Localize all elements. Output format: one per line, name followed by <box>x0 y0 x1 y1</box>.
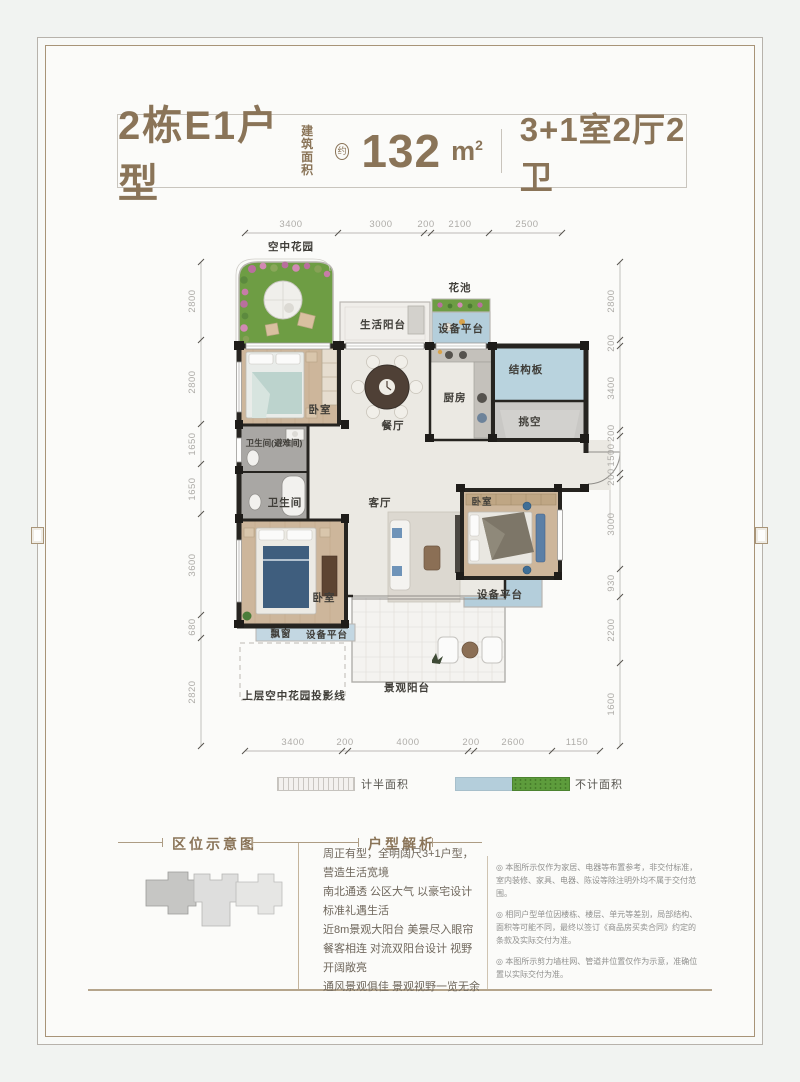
area-label: 建筑 面积 <box>301 125 323 177</box>
balcony-chair <box>482 637 502 663</box>
label-kitchen: 厨房 <box>444 391 467 404</box>
svg-text:200: 200 <box>606 334 617 351</box>
balcony-table <box>462 642 478 658</box>
label-equip-top: 设备平台 <box>438 322 484 335</box>
area-value: 132 <box>361 124 441 178</box>
svg-text:3000: 3000 <box>606 512 617 535</box>
analysis-line: 通风景观俱佳 景观视野一览无余 <box>323 978 481 997</box>
disclaimer-note: ◎ 相同户型单位因楼栋、楼层、单元等差别，局部结构、面积等可能不同，最终以签订《… <box>496 908 701 947</box>
label-bathroom: 卫生间 <box>268 496 303 509</box>
svg-text:200: 200 <box>606 468 617 485</box>
label-projection: 上层空中花园投影线 <box>242 689 346 702</box>
label-flower-bed: 花池 <box>449 281 472 294</box>
analysis-text: 周正有型，全明阔尺3+1户型，营造生活宽境 南北通透 公区大气 以豪宅设计标准礼… <box>323 845 481 997</box>
approx-badge: 约 <box>335 143 349 160</box>
svg-text:3400: 3400 <box>281 737 304 748</box>
label-bay-window: 飘窗 <box>269 628 291 640</box>
heading-line <box>118 842 162 843</box>
coffee-table <box>424 546 440 570</box>
dresser <box>322 556 337 596</box>
svg-text:1500: 1500 <box>606 443 617 466</box>
heading-tick <box>162 838 163 847</box>
label-equip-bottom: 设备平台 <box>306 629 348 641</box>
disclaimer-note: ◎ 本图所示剪力墙柱网、管道井位置仅作为示意，准确位置以实际交付为准。 <box>496 955 701 981</box>
label-life-balcony: 生活阳台 <box>360 318 406 331</box>
disclaimer: ◎ 本图所示仅作为家居、电器等布置参考，非交付标准，室内装修、家具、电器、陈设等… <box>496 861 701 989</box>
water-heater <box>408 306 424 334</box>
living-furniture <box>388 512 460 602</box>
bathtub <box>282 476 305 516</box>
building-footprint <box>138 860 288 945</box>
legend-excluded-label: 不计面积 <box>575 776 623 792</box>
analysis-line: 南北通透 公区大气 以豪宅设计标准礼遇生活 <box>323 883 481 921</box>
svg-text:3600: 3600 <box>187 553 198 576</box>
svg-text:1600: 1600 <box>606 692 617 715</box>
svg-text:2100: 2100 <box>448 219 471 230</box>
svg-text:2800: 2800 <box>187 289 198 312</box>
svg-text:200: 200 <box>606 424 617 441</box>
label-dining: 餐厅 <box>381 419 405 432</box>
legend-half-area-swatch <box>277 777 355 791</box>
heading-line <box>252 842 358 843</box>
legend-excluded-green-swatch <box>512 777 570 791</box>
heading-line <box>432 842 482 843</box>
svg-text:3400: 3400 <box>279 219 302 230</box>
analysis-line: 周正有型，全明阔尺3+1户型，营造生活宽境 <box>323 845 481 883</box>
svg-text:680: 680 <box>187 618 198 635</box>
section-divider-1 <box>298 843 299 990</box>
analysis-line: 餐客相连 对流双阳台设计 视野开阔敞亮 <box>323 940 481 978</box>
footprint-block-highlight <box>146 872 196 914</box>
footprint-block-mid <box>194 874 238 926</box>
label-void: 挑空 <box>519 415 542 428</box>
toilet <box>247 450 259 466</box>
svg-text:3000: 3000 <box>369 219 392 230</box>
svg-text:2600: 2600 <box>501 737 524 748</box>
svg-text:1650: 1650 <box>187 432 198 455</box>
toilet <box>249 494 261 510</box>
svg-text:2820: 2820 <box>187 680 198 703</box>
svg-text:200: 200 <box>336 737 353 748</box>
svg-text:4000: 4000 <box>396 737 419 748</box>
unit-title: 2栋E1户型 <box>118 93 287 209</box>
label-equip-right: 设备平台 <box>477 588 523 601</box>
disclaimer-note: ◎ 本图所示仅作为家居、电器等布置参考，非交付标准，室内装修、家具、电器、陈设等… <box>496 861 701 900</box>
label-bath-refuge: 卫生间(避难间) <box>246 438 303 448</box>
label-view-balcony: 景观阳台 <box>383 681 430 694</box>
legend-excluded-blue-swatch <box>455 777 514 791</box>
label-bedroom-right: 卧室 <box>471 496 492 508</box>
label-bedroom-top: 卧室 <box>309 403 332 416</box>
layout-spec: 3+1室2厅2卫 <box>520 103 686 199</box>
section-divider-2 <box>487 856 488 990</box>
area-unit: m2 <box>451 136 483 167</box>
floorplan-page: { "title": { "unit_name": "2栋E1户型", "are… <box>0 0 800 1082</box>
frame-ornament-left <box>31 527 44 544</box>
svg-text:2200: 2200 <box>606 618 617 641</box>
svg-text:930: 930 <box>606 574 617 591</box>
analysis-line: 近8m景观大阳台 美景尽入眼帘 <box>323 921 481 940</box>
location-heading: 区位示意图 <box>172 834 257 854</box>
svg-text:2800: 2800 <box>187 370 198 393</box>
title-box: 2栋E1户型 建筑 面积 约 132 m2 3+1室2厅2卫 <box>117 114 687 188</box>
tv-console <box>455 515 460 573</box>
svg-text:2800: 2800 <box>606 289 617 312</box>
view-balcony-area <box>352 597 505 682</box>
svg-text:3400: 3400 <box>606 376 617 399</box>
svg-text:1150: 1150 <box>566 737 588 748</box>
wardrobe-top <box>322 349 337 405</box>
frame-ornament-right <box>755 527 768 544</box>
floor-plan: 3400 3000 200 2100 2500 3400 200 4000 20… <box>170 195 640 770</box>
svg-text:2500: 2500 <box>515 219 538 230</box>
label-sky-garden: 空中花园 <box>268 240 314 253</box>
svg-text:200: 200 <box>417 219 434 230</box>
label-structure-slab: 结构板 <box>509 363 544 376</box>
plant <box>243 612 252 621</box>
label-bedroom-master: 卧室 <box>313 591 336 604</box>
legend-half-area-label: 计半面积 <box>361 776 409 792</box>
footprint-block-right <box>236 874 282 914</box>
svg-text:200: 200 <box>462 737 479 748</box>
svg-text:1650: 1650 <box>187 477 198 500</box>
label-living: 客厅 <box>368 496 392 509</box>
title-divider <box>501 129 502 173</box>
